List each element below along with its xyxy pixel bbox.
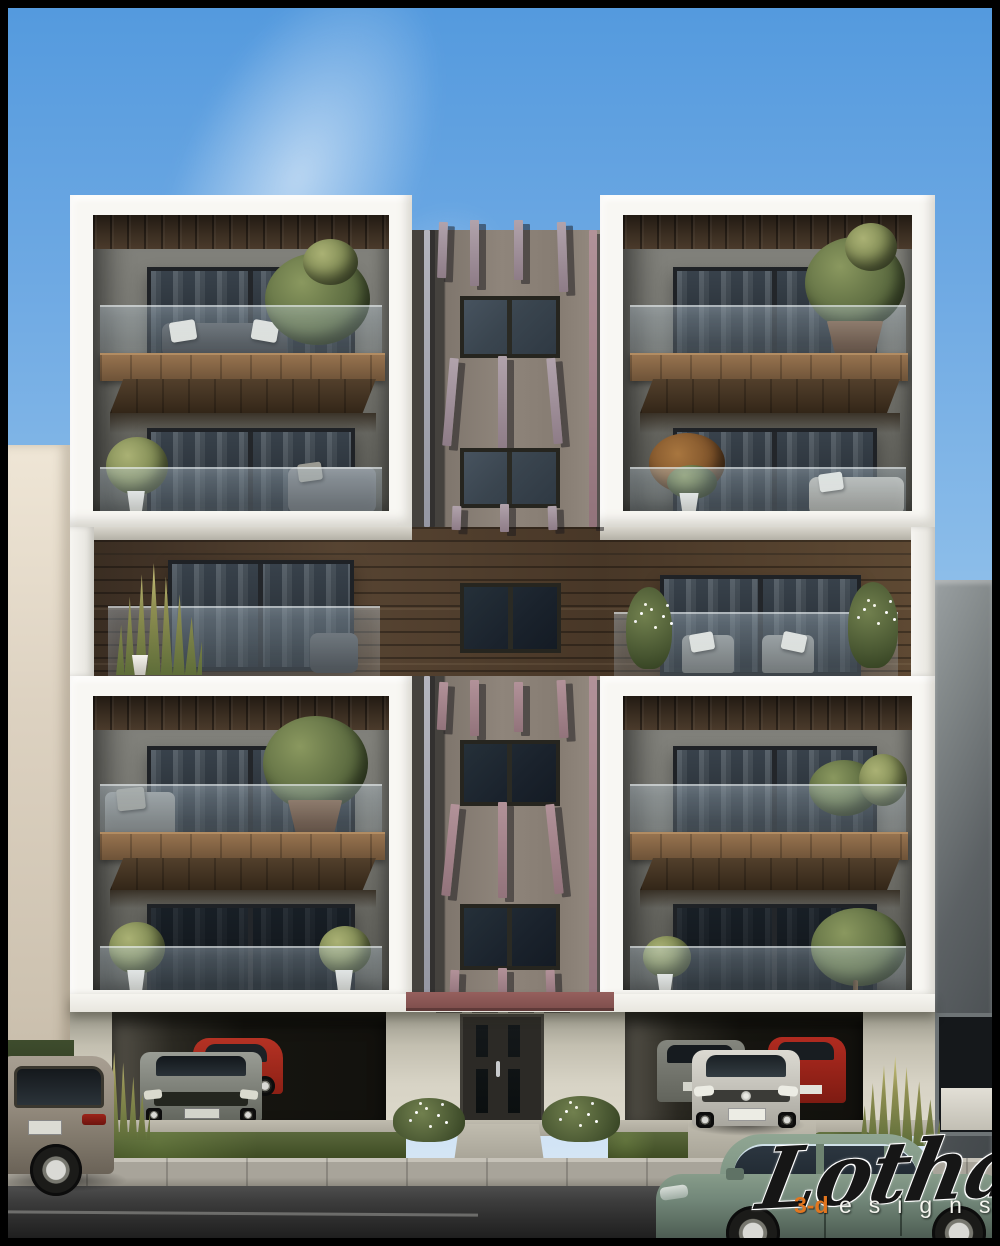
headlight bbox=[144, 1089, 163, 1100]
strip-fin bbox=[452, 506, 462, 530]
car-suv-grey bbox=[8, 1056, 118, 1188]
unit-interior bbox=[623, 215, 912, 511]
strip-fin bbox=[556, 680, 568, 738]
balcony-unit-bottom-left bbox=[70, 676, 412, 1006]
balcony-slab bbox=[100, 353, 385, 381]
balcony-soffit bbox=[110, 858, 376, 890]
watermark: Lothal 3-d esigns bbox=[750, 1126, 992, 1236]
tree-foliage bbox=[845, 223, 897, 271]
strip-fin bbox=[545, 804, 563, 894]
car-rear-window bbox=[14, 1066, 104, 1108]
artwork-frame: Lothal 3-d esigns bbox=[0, 0, 1000, 1246]
strip-fin bbox=[500, 504, 509, 532]
strip-fin bbox=[424, 676, 430, 994]
flower-plant bbox=[848, 582, 898, 668]
balcony-soffit bbox=[110, 379, 376, 413]
watermark-sub-prefix: 3-d bbox=[794, 1192, 829, 1218]
balcony-soffit bbox=[640, 858, 900, 890]
bush bbox=[542, 1096, 620, 1142]
strip-fin bbox=[442, 358, 459, 446]
unit-interior bbox=[623, 696, 912, 990]
strip-fin bbox=[498, 802, 507, 898]
garage-left bbox=[112, 1012, 386, 1120]
wheel bbox=[240, 1108, 256, 1120]
vw-emblem bbox=[741, 1091, 751, 1101]
balcony-unit-bottom-right bbox=[600, 676, 935, 1006]
strip-fin bbox=[470, 680, 479, 736]
strip-fin bbox=[514, 220, 523, 280]
unit-interior bbox=[93, 215, 389, 511]
wheel bbox=[696, 1112, 714, 1128]
balcony-soffit bbox=[640, 379, 900, 413]
watermark-sub-rest: esigns bbox=[839, 1192, 992, 1218]
headlight bbox=[694, 1085, 715, 1097]
facade-edge-column-left bbox=[70, 527, 94, 676]
center-strip-upper bbox=[412, 230, 600, 527]
bush bbox=[393, 1098, 465, 1142]
car-vw-silver bbox=[692, 1050, 800, 1132]
balcony-soffit bbox=[94, 527, 412, 540]
balcony-unit-top-right bbox=[600, 195, 935, 527]
tree-foliage bbox=[303, 239, 358, 285]
strip-window-3 bbox=[460, 740, 560, 806]
balcony-slab bbox=[100, 832, 385, 860]
strip-fin bbox=[470, 220, 479, 286]
flower-plant bbox=[626, 587, 672, 669]
strip-window-4 bbox=[460, 904, 560, 970]
unit-interior bbox=[93, 696, 389, 990]
watermark-sub: 3-d esigns bbox=[794, 1192, 992, 1219]
facade-edge-column-right bbox=[911, 527, 935, 676]
strip-fin bbox=[441, 804, 460, 896]
entrance-path bbox=[454, 1124, 544, 1162]
car-grille bbox=[154, 1092, 248, 1106]
side-mirror bbox=[726, 1168, 744, 1180]
glass-balustrade-lower bbox=[100, 467, 382, 511]
balcony-slab bbox=[630, 353, 908, 381]
strip-fin bbox=[546, 358, 562, 444]
center-strip-lower bbox=[412, 676, 600, 994]
headlight bbox=[778, 1085, 799, 1097]
strip-fin bbox=[498, 356, 507, 448]
car-sedan-grey bbox=[140, 1052, 262, 1120]
strip-fin bbox=[424, 230, 430, 527]
strip-fin bbox=[548, 506, 558, 530]
glass-balustrade-lower bbox=[100, 946, 382, 990]
strip-fin bbox=[589, 230, 597, 527]
license-plate bbox=[28, 1120, 62, 1135]
balcony-slab bbox=[630, 832, 908, 860]
strip-fin bbox=[514, 682, 523, 732]
headlight bbox=[240, 1089, 259, 1100]
door-glass-panel bbox=[508, 1025, 520, 1113]
glass-balustrade-lower bbox=[630, 946, 906, 990]
license-plate bbox=[728, 1108, 766, 1121]
lane-marking bbox=[8, 1210, 478, 1216]
strip-window-2 bbox=[460, 448, 560, 508]
strip-fin bbox=[437, 222, 448, 278]
strip-fin bbox=[589, 676, 597, 994]
mid-floor-band bbox=[94, 527, 911, 676]
fin-red-band bbox=[406, 992, 614, 1011]
glass-balustrade-upper bbox=[100, 784, 382, 834]
door-handle bbox=[496, 1061, 500, 1077]
balcony-soffit bbox=[600, 527, 911, 540]
glass-balustrade-lower bbox=[630, 467, 906, 511]
license-plate bbox=[184, 1108, 220, 1119]
car-windshield bbox=[706, 1055, 786, 1077]
strip-fin bbox=[437, 682, 448, 730]
wheel bbox=[146, 1108, 162, 1120]
wheel bbox=[30, 1144, 82, 1196]
glass-balustrade-upper bbox=[630, 784, 906, 834]
glass-balustrade-upper bbox=[630, 305, 906, 355]
entrance-door bbox=[460, 1014, 544, 1130]
mid-window-center bbox=[460, 583, 561, 653]
balcony-unit-top-left bbox=[70, 195, 412, 527]
scene: Lothal 3-d esigns bbox=[8, 8, 992, 1238]
tail-light bbox=[82, 1114, 106, 1125]
door-glass-panel bbox=[476, 1025, 488, 1113]
glass-balustrade-upper bbox=[100, 305, 382, 355]
ceiling-wood bbox=[623, 696, 912, 730]
strip-window-1 bbox=[460, 296, 560, 358]
car-windshield bbox=[156, 1056, 246, 1076]
strip-fin bbox=[557, 222, 568, 292]
